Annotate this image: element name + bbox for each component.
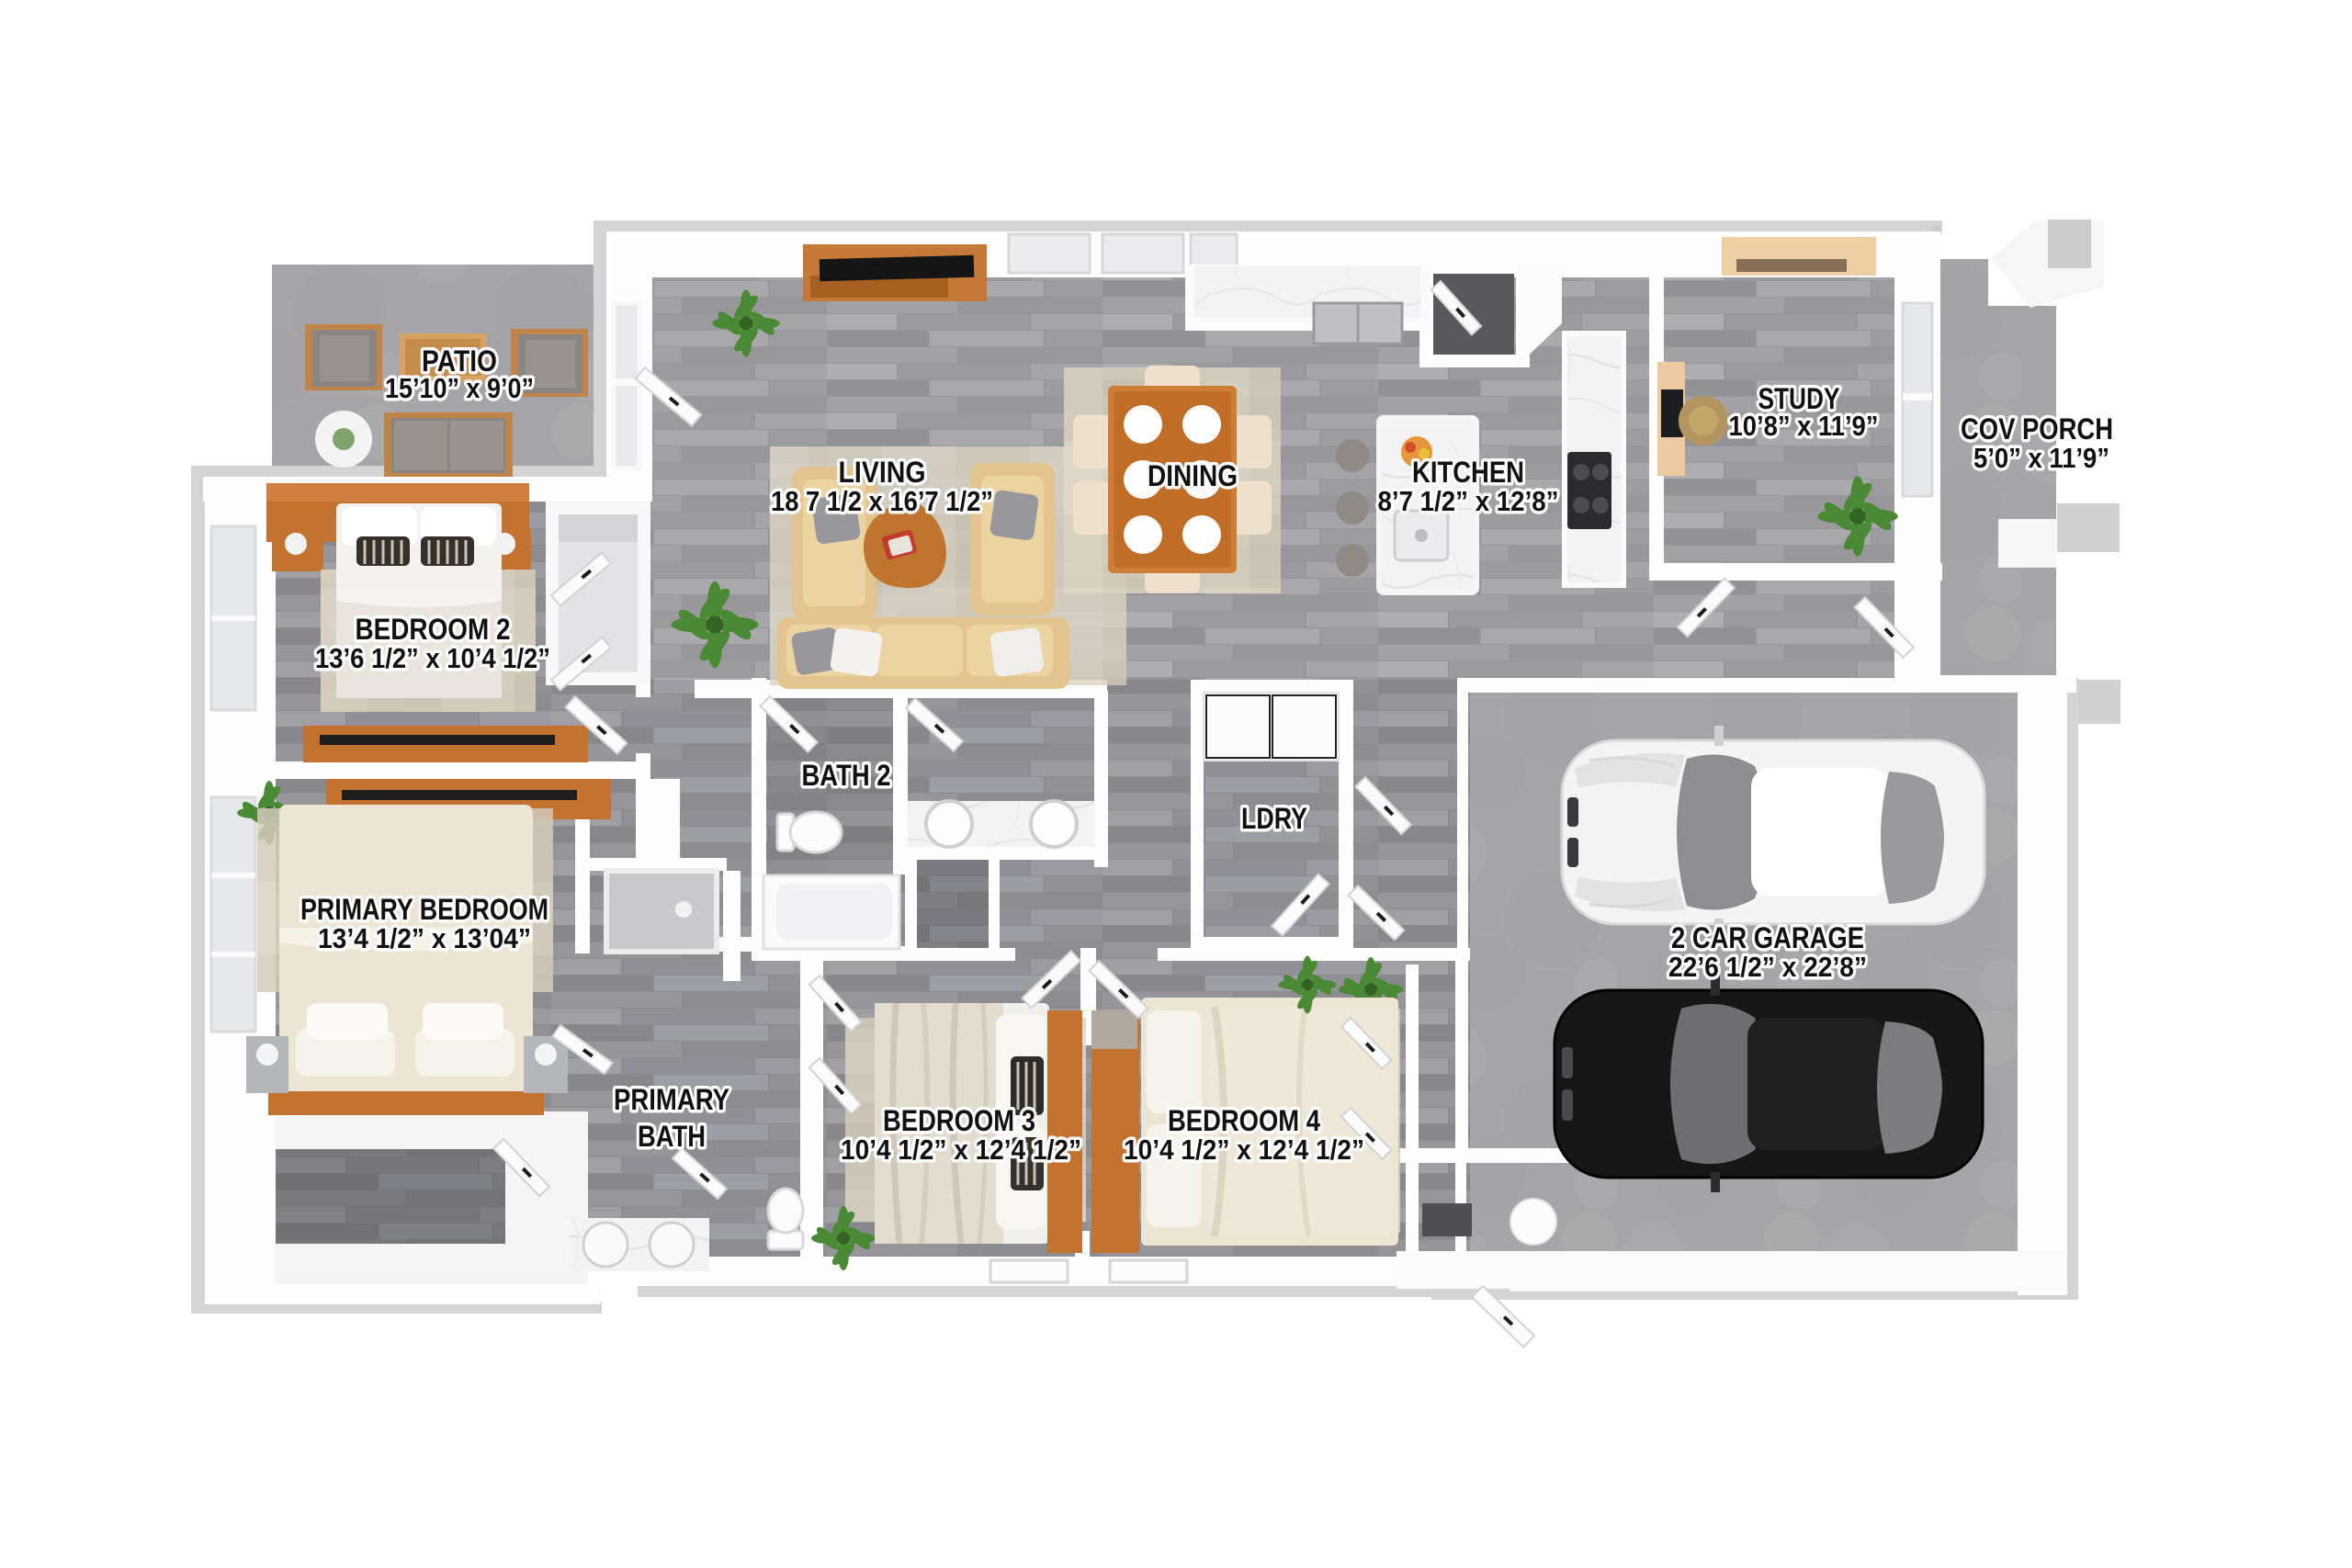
svg-text:BATH 2: BATH 2 — [802, 759, 891, 792]
svg-text:LIVING: LIVING — [839, 456, 926, 489]
svg-text:8’7 1/2” x 12’8”: 8’7 1/2” x 12’8” — [1378, 485, 1559, 517]
svg-text:KITCHEN: KITCHEN — [1412, 456, 1524, 489]
svg-text:BEDROOM 3: BEDROOM 3 — [883, 1104, 1035, 1137]
svg-text:BEDROOM 2: BEDROOM 2 — [356, 613, 511, 646]
svg-text:13’6 1/2” x 10’4 1/2”: 13’6 1/2” x 10’4 1/2” — [315, 642, 550, 674]
svg-text:5’0” x 11’9”: 5’0” x 11’9” — [1973, 442, 2109, 474]
svg-text:10’4 1/2” x 12’4 1/2”: 10’4 1/2” x 12’4 1/2” — [841, 1134, 1081, 1166]
svg-text:PRIMARY: PRIMARY — [614, 1083, 729, 1116]
svg-text:LDRY: LDRY — [1241, 802, 1307, 835]
svg-text:10’8” x 11’9”: 10’8” x 11’9” — [1729, 410, 1879, 442]
svg-text:10’4 1/2” x 12’4 1/2”: 10’4 1/2” x 12’4 1/2” — [1124, 1134, 1364, 1166]
svg-text:13’4 1/2” x 13’04”: 13’4 1/2” x 13’04” — [318, 922, 531, 954]
svg-text:BEDROOM 4: BEDROOM 4 — [1168, 1104, 1320, 1137]
svg-text:DINING: DINING — [1148, 459, 1238, 492]
svg-text:PRIMARY BEDROOM: PRIMARY BEDROOM — [300, 893, 548, 926]
svg-text:15’10” x 9’0”: 15’10” x 9’0” — [385, 372, 534, 404]
svg-text:18 7 1/2 x 16’7 1/2”: 18 7 1/2 x 16’7 1/2” — [771, 485, 993, 517]
svg-text:2 CAR GARAGE: 2 CAR GARAGE — [1671, 921, 1864, 954]
svg-text:22’6 1/2” x 22’8”: 22’6 1/2” x 22’8” — [1668, 951, 1867, 983]
svg-text:BATH: BATH — [638, 1120, 706, 1153]
svg-text:COV PORCH: COV PORCH — [1961, 412, 2113, 446]
